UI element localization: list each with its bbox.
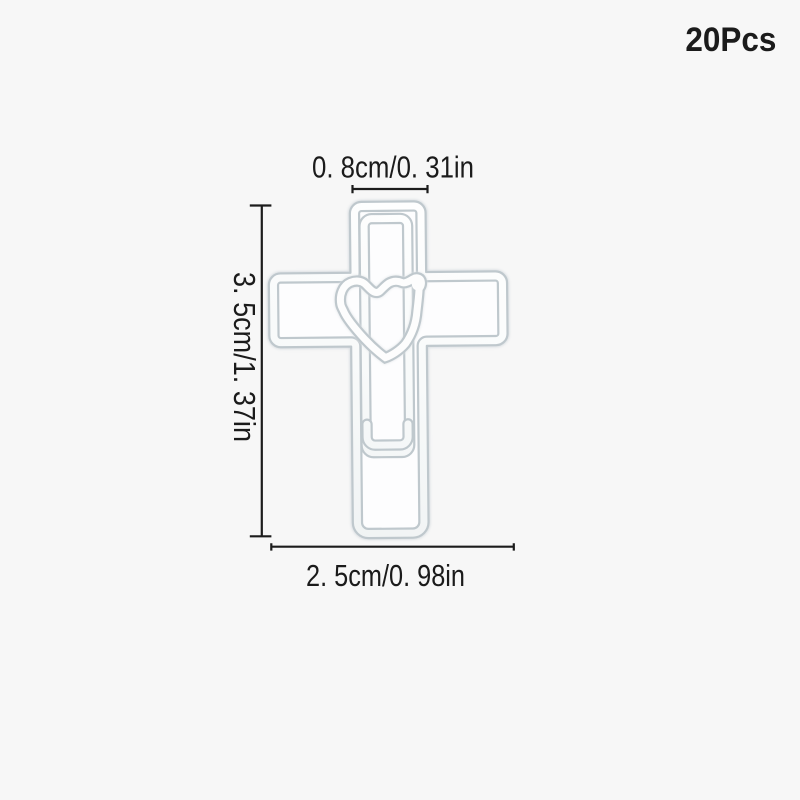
svg-text:3. 5cm/1. 37in: 3. 5cm/1. 37in: [227, 272, 262, 442]
svg-text:0. 8cm/0. 31in: 0. 8cm/0. 31in: [312, 150, 474, 185]
svg-text:20Pcs: 20Pcs: [685, 21, 776, 59]
svg-text:2. 5cm/0. 98in: 2. 5cm/0. 98in: [306, 558, 465, 593]
